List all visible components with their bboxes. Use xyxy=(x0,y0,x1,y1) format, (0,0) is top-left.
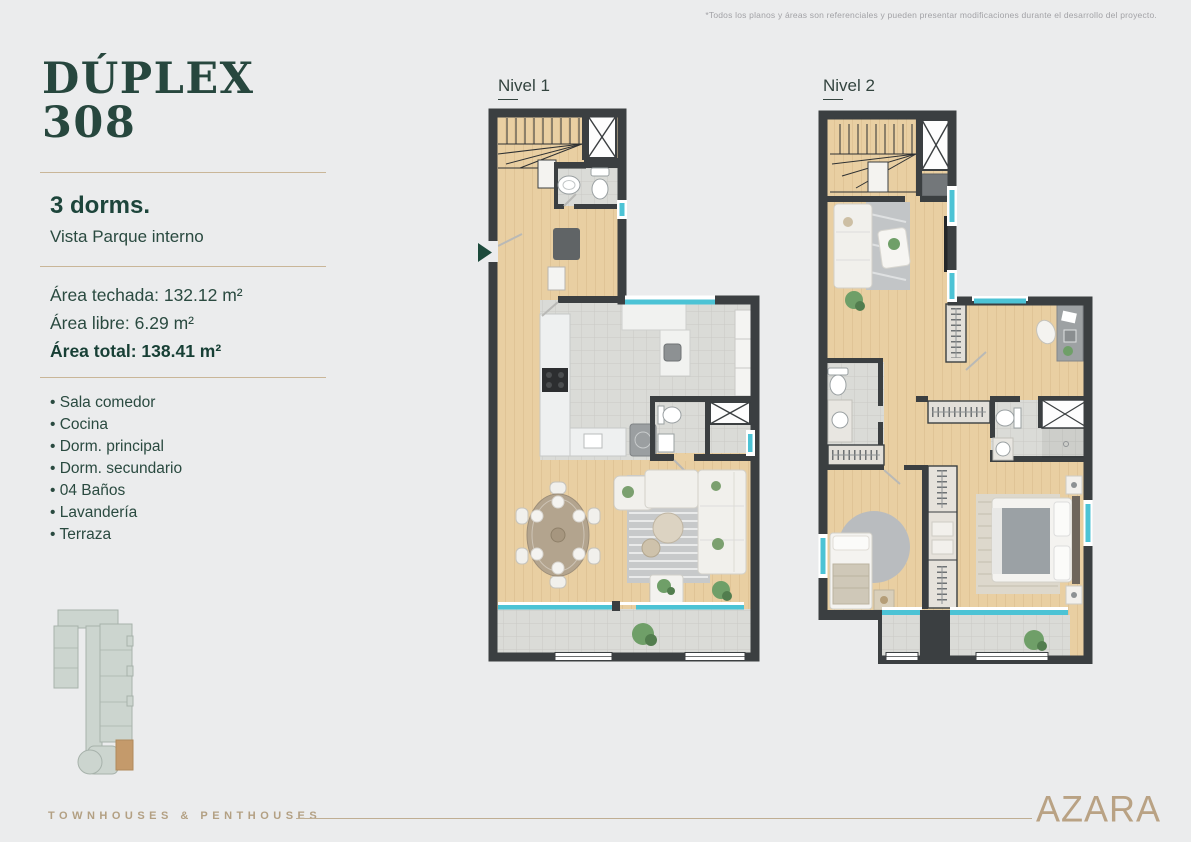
disclaimer-text: *Todos los planos y áreas son referencia… xyxy=(705,10,1157,20)
feature-item: 04 Baños xyxy=(50,480,182,502)
sink-icon xyxy=(658,434,674,452)
kitchen-sink xyxy=(584,434,602,448)
wardrobe xyxy=(928,466,957,608)
brand-logo: AZARA xyxy=(1036,787,1161,831)
terrace-floor xyxy=(493,609,755,657)
building-key-map xyxy=(44,596,166,792)
view-description: Vista Parque interno xyxy=(50,227,204,247)
bedrooms-count: 3 dorms. xyxy=(50,192,150,220)
fridge-icon xyxy=(553,228,580,260)
laundry-counter xyxy=(622,304,686,330)
nivel1-label: Nivel 1 xyxy=(498,76,550,100)
feature-item: Dorm. principal xyxy=(50,436,182,458)
sink-icon xyxy=(996,442,1010,456)
pillow xyxy=(833,536,869,550)
feature-list: Sala comedor Cocina Dorm. principal Dorm… xyxy=(50,392,182,546)
divider xyxy=(40,377,326,378)
laundry-sink xyxy=(664,344,681,361)
elevator-icon xyxy=(588,116,616,158)
floor-plan-nivel-2 xyxy=(816,104,1101,664)
nivel2-label: Nivel 2 xyxy=(823,76,875,100)
hall-cabinet xyxy=(548,267,565,290)
sofa xyxy=(834,204,872,288)
footer-tagline: TOWNHOUSES & PENTHOUSES xyxy=(48,810,321,822)
feature-item: Dorm. secundario xyxy=(50,458,182,480)
bathroom2-door-gap xyxy=(674,454,694,461)
stair-landing xyxy=(868,162,888,192)
storage-cabinet xyxy=(735,310,752,396)
pillow xyxy=(1054,502,1070,536)
area-total: Área total: 138.41 m² xyxy=(50,337,243,365)
stove-icon xyxy=(542,368,568,392)
toilet-icon xyxy=(996,410,1014,426)
footer-divider-line xyxy=(296,818,1032,819)
areas-block: Área techada: 132.12 m² Área libre: 6.29… xyxy=(50,281,243,365)
feature-item: Terraza xyxy=(50,524,182,546)
divider xyxy=(40,172,326,173)
duct-box xyxy=(922,174,950,196)
headboard xyxy=(1072,496,1080,584)
side-table xyxy=(642,539,660,557)
closet-rack xyxy=(928,401,990,423)
blanket xyxy=(833,564,869,604)
pillow xyxy=(1054,546,1070,580)
shaft-icon xyxy=(710,402,750,424)
feature-item: Cocina xyxy=(50,414,182,436)
unit-title: DÚPLEX308 xyxy=(42,58,255,146)
sink-icon xyxy=(832,412,848,428)
unit-title-line1: DÚPLEX xyxy=(42,54,255,104)
divider xyxy=(40,266,326,267)
stair-landing xyxy=(538,160,556,188)
coffee-table xyxy=(653,513,683,543)
unit-title-line2: 308 xyxy=(42,98,136,148)
closet-rack xyxy=(946,304,966,362)
feature-item: Sala comedor xyxy=(50,392,182,414)
toilet-icon xyxy=(592,179,608,199)
area-free: Área libre: 6.29 m² xyxy=(50,309,243,337)
brochure-page: *Todos los planos y áreas son referencia… xyxy=(0,0,1191,842)
feature-item: Lavandería xyxy=(50,502,182,524)
keymap-unit-highlight xyxy=(116,740,133,770)
floor-plan-nivel-1 xyxy=(478,104,768,664)
toilet-icon xyxy=(830,375,846,395)
closet-rack xyxy=(828,445,884,465)
toilet-icon xyxy=(663,407,681,423)
keymap-foot-bulge xyxy=(78,750,102,774)
sink-icon xyxy=(558,176,580,194)
toilet-tank xyxy=(591,168,609,176)
footprint-notch xyxy=(816,620,878,664)
area-roofed: Área techada: 132.12 m² xyxy=(50,281,243,309)
keymap-left-wing xyxy=(54,626,78,688)
elevator-icon xyxy=(922,120,950,170)
balcony-glazing xyxy=(882,607,1068,615)
sofa-chaise xyxy=(645,470,698,508)
sofa xyxy=(698,470,746,574)
